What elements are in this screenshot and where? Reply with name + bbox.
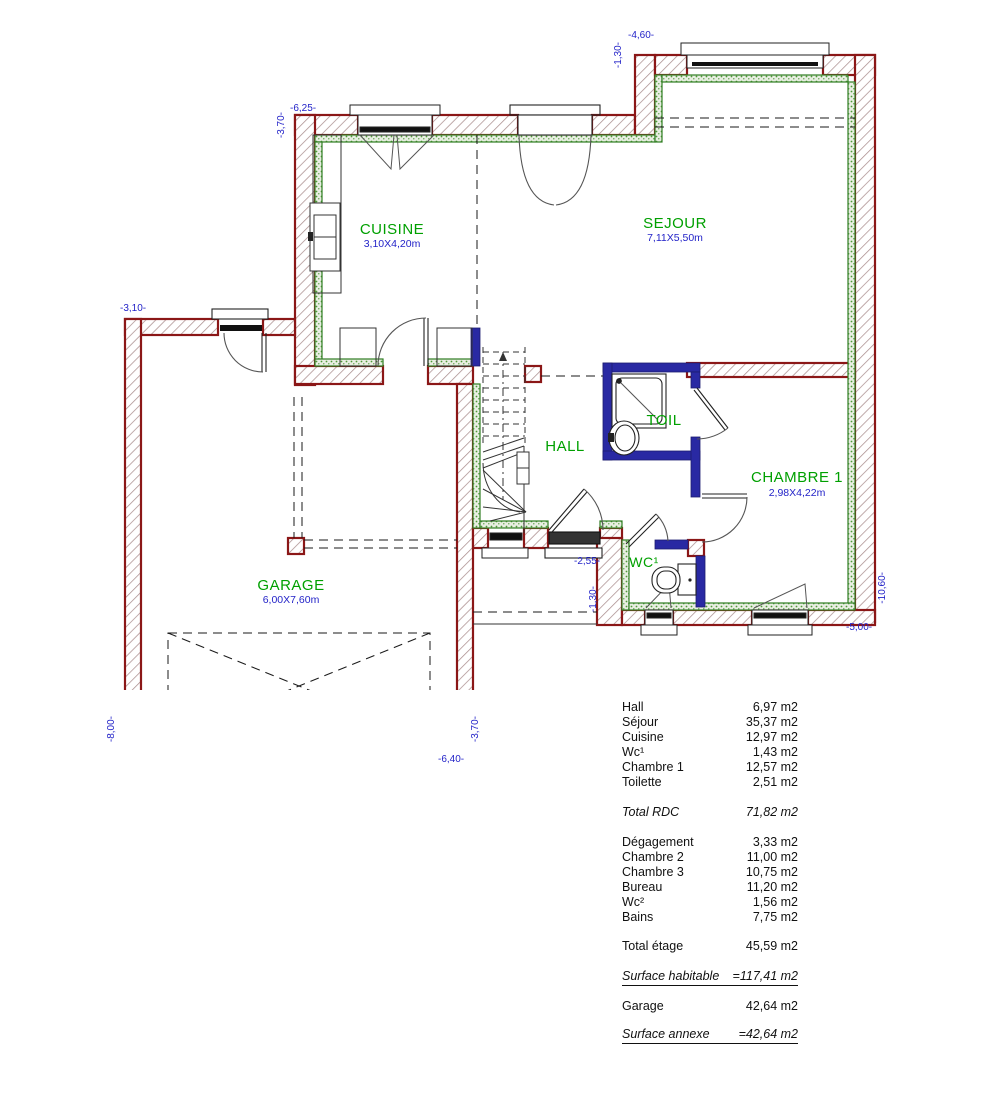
row-value: 2,51 m2 (753, 775, 798, 790)
areas-table: Hall6,97 m2 Séjour35,37 m2 Cuisine12,97 … (622, 700, 798, 1044)
row-value: 6,97 m2 (753, 700, 798, 715)
table-row-total-etage: Total étage45,59 m2 (622, 939, 798, 954)
row-label: Bains (622, 910, 653, 925)
table-row: Bains7,75 m2 (622, 910, 798, 925)
dim-wc-step-w: -2,55- (574, 556, 600, 567)
dim-sejour-top: -4,60- (628, 30, 654, 41)
room-label-toil: TOIL (646, 412, 681, 429)
table-row-surface-annexe: Surface annexe=42,64 m2 (622, 1027, 798, 1044)
floor-plan-drawing (0, 0, 1000, 690)
stairs (483, 347, 529, 533)
row-value: 1,43 m2 (753, 745, 798, 760)
dim-wc-step-h: -1,30- (588, 586, 599, 612)
table-row: Bureau11,20 m2 (622, 880, 798, 895)
row-label: Chambre 1 (622, 760, 684, 775)
room-label-chambre1: CHAMBRE 1 (751, 469, 843, 486)
table-row: Chambre 310,75 m2 (622, 865, 798, 880)
exterior-walls (125, 55, 875, 690)
row-value: 12,57 m2 (746, 760, 798, 775)
room-label-sejour: SEJOUR (643, 215, 707, 232)
dim-house-right: -10,60- (877, 572, 888, 604)
row-value: =42,64 m2 (739, 1027, 798, 1042)
row-value: 12,97 m2 (746, 730, 798, 745)
row-label: Hall (622, 700, 644, 715)
table-row: Chambre 211,00 m2 (622, 850, 798, 865)
table-row-total-rdc: Total RDC71,82 m2 (622, 805, 798, 820)
table-row: Wc¹1,43 m2 (622, 745, 798, 760)
table-row-surface-habitable: Surface habitable=117,41 m2 (622, 969, 798, 986)
row-value: 42,64 m2 (746, 999, 798, 1014)
room-label-hall: HALL (545, 438, 585, 455)
table-row: Séjour35,37 m2 (622, 715, 798, 730)
row-label: Total étage (622, 939, 683, 954)
table-row: Hall6,97 m2 (622, 700, 798, 715)
row-label: Cuisine (622, 730, 664, 745)
dim-cuisine-top: -6,25- (290, 103, 316, 114)
dim-garage-left: -8,00- (106, 716, 117, 742)
insulation-bands (315, 75, 855, 610)
room-label-wc: WC¹ (629, 554, 659, 570)
room-size-garage: 6,00X7,60m (263, 594, 320, 606)
table-row: Cuisine12,97 m2 (622, 730, 798, 745)
row-label: Séjour (622, 715, 658, 730)
row-label: Chambre 2 (622, 850, 684, 865)
row-value: 35,37 m2 (746, 715, 798, 730)
row-value: 11,20 m2 (747, 880, 798, 895)
row-value: =117,41 m2 (733, 969, 798, 984)
row-label: Surface annexe (622, 1027, 710, 1042)
row-label: Total RDC (622, 805, 679, 820)
row-label: Wc² (622, 895, 644, 910)
row-label: Wc¹ (622, 745, 644, 760)
room-size-sejour: 7,11X5,50m (647, 232, 703, 244)
dim-garage-bottom: -6,40- (438, 754, 464, 765)
table-row: Chambre 112,57 m2 (622, 760, 798, 775)
row-value: 45,59 m2 (746, 939, 798, 954)
row-label: Bureau (622, 880, 662, 895)
row-label: Dégagement (622, 835, 694, 850)
dim-garage-right: -3,70- (470, 716, 481, 742)
row-label: Surface habitable (622, 969, 719, 984)
table-row: Toilette2,51 m2 (622, 775, 798, 790)
row-value: 1,56 m2 (753, 895, 798, 910)
row-value: 11,00 m2 (747, 850, 798, 865)
dim-cuisine-left: -3,70- (276, 112, 287, 138)
room-size-cuisine: 3,10X4,20m (364, 238, 421, 250)
dim-garage-top: -3,10- (120, 303, 146, 314)
table-row: Dégagement3,33 m2 (622, 835, 798, 850)
room-label-cuisine: CUISINE (360, 221, 424, 238)
dim-sejour-step: -1,30- (613, 42, 624, 68)
room-label-garage: GARAGE (257, 577, 324, 594)
row-value: 10,75 m2 (746, 865, 798, 880)
row-label: Chambre 3 (622, 865, 684, 880)
row-value: 7,75 m2 (753, 910, 798, 925)
kitchen-counters (308, 135, 472, 366)
row-label: Toilette (622, 775, 662, 790)
row-label: Garage (622, 999, 664, 1014)
row-value: 3,33 m2 (753, 835, 798, 850)
room-size-chambre1: 2,98X4,22m (769, 487, 826, 499)
dim-chambre-bottom: -5,00- (846, 622, 872, 633)
table-row-garage: Garage42,64 m2 (622, 999, 798, 1014)
table-row: Wc²1,56 m2 (622, 895, 798, 910)
row-value: 71,82 m2 (746, 805, 798, 820)
floorplan-page: CUISINE 3,10X4,20m SEJOUR 7,11X5,50m HAL… (0, 0, 1000, 1100)
